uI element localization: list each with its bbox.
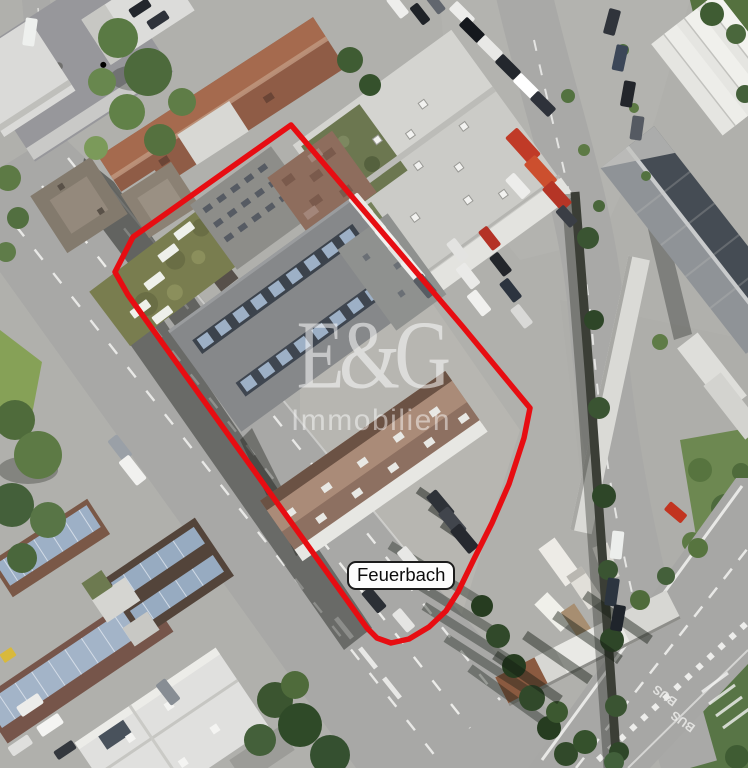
aerial-photo: BUS BUS — [0, 0, 748, 768]
aerial-photo-viewport: BUS BUS — [0, 0, 748, 768]
place-label-feuerbach: Feuerbach — [347, 561, 455, 590]
